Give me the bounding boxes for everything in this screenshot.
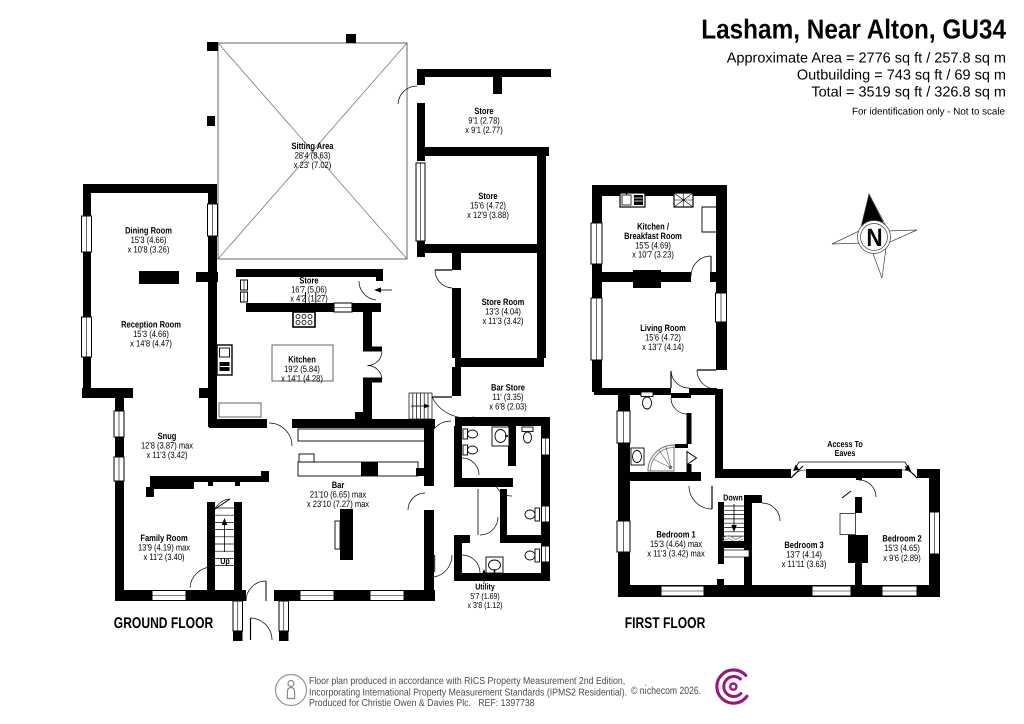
svg-text:GROUND FLOOR: GROUND FLOOR <box>114 615 213 632</box>
svg-text:15'3 (4.65): 15'3 (4.65) <box>884 543 920 553</box>
svg-text:x 23'10 (7.27) max: x 23'10 (7.27) max <box>307 499 369 509</box>
svg-text:For identification only - Not: For identification only - Not to scale <box>852 107 1006 118</box>
svg-text:x 14'1 (4.28): x 14'1 (4.28) <box>281 373 323 383</box>
svg-text:© nı́checom 2026.: © nı́checom 2026. <box>631 684 701 697</box>
svg-text:x 9'1 (2.77): x 9'1 (2.77) <box>465 125 502 135</box>
svg-text:Incorporating International Pr: Incorporating International Property Mea… <box>309 688 627 699</box>
svg-text:x 12'9 (3.88): x 12'9 (3.88) <box>467 210 509 220</box>
svg-text:Bedroom 2: Bedroom 2 <box>882 534 921 544</box>
svg-text:Approximate Area = 2776 sq ft: Approximate Area = 2776 sq ft / 257.8 sq… <box>727 51 1006 67</box>
svg-text:Up: Up <box>220 556 230 566</box>
svg-text:x 23' (7.02): x 23' (7.02) <box>294 160 331 170</box>
svg-text:Down: Down <box>723 493 743 503</box>
svg-text:Total = 3519 sq ft / 326.8 sq: Total = 3519 sq ft / 326.8 sq m <box>811 85 1006 101</box>
svg-text:x 3'8 (1.12): x 3'8 (1.12) <box>467 600 502 610</box>
svg-text:x 4'2 (1.27): x 4'2 (1.27) <box>290 293 327 303</box>
svg-text:x 14'8 (4.47): x 14'8 (4.47) <box>130 338 172 348</box>
svg-text:FIRST FLOOR: FIRST FLOOR <box>625 615 706 632</box>
svg-text:N: N <box>866 224 882 252</box>
svg-text:Lasham, Near Alton, GU34: Lasham, Near Alton, GU34 <box>701 14 1006 45</box>
svg-text:Floor plan produced in accorda: Floor plan produced in accordance with R… <box>309 676 625 687</box>
svg-text:x 11'3 (3.42) max: x 11'3 (3.42) max <box>647 548 705 558</box>
svg-text:x 11'3 (3.42): x 11'3 (3.42) <box>146 450 187 460</box>
svg-text:x 13'7 (4.14): x 13'7 (4.14) <box>642 342 684 352</box>
svg-text:x 6'8 (2.03): x 6'8 (2.03) <box>489 401 526 411</box>
svg-text:Outbuilding = 743 sq ft / 69 s: Outbuilding = 743 sq ft / 69 sq m <box>797 68 1006 84</box>
svg-text:x 10'7 (3.23): x 10'7 (3.23) <box>632 250 674 260</box>
svg-text:x 11'2 (3.40): x 11'2 (3.40) <box>143 552 184 562</box>
svg-text:x 10'8 (3.26): x 10'8 (3.26) <box>128 244 170 254</box>
svg-text:x 11'11 (3.63): x 11'11 (3.63) <box>782 559 827 569</box>
svg-text:x 11'3 (3.42): x 11'3 (3.42) <box>482 316 523 326</box>
svg-text:x 9'6 (2.89): x 9'6 (2.89) <box>883 553 920 563</box>
svg-text:Eaves: Eaves <box>835 448 856 458</box>
svg-text:Produced for Christie Owen & D: Produced for Christie Owen & Davies Plc.… <box>309 698 535 709</box>
